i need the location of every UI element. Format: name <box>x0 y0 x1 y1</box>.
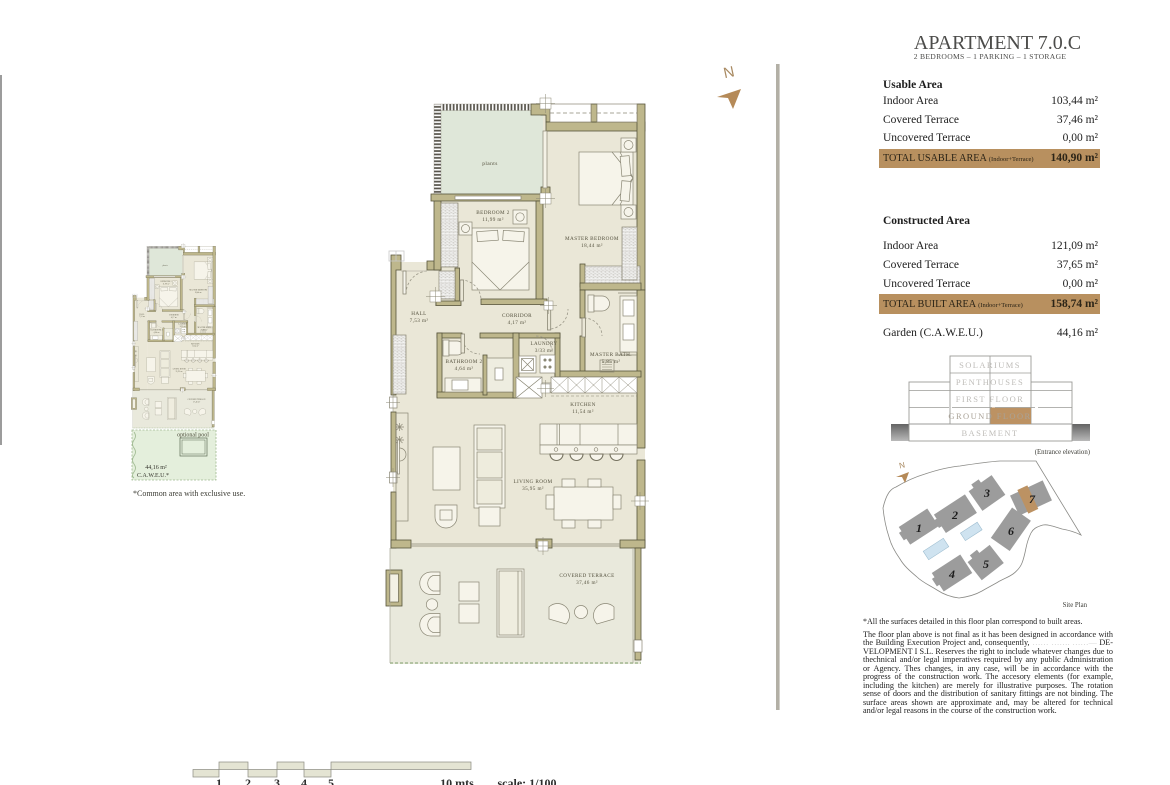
svg-text:(Entrance elevation): (Entrance elevation) <box>1035 449 1090 456</box>
svg-text:HALL: HALL <box>411 311 426 317</box>
svg-text:11,99 m²: 11,99 m² <box>482 217 504 223</box>
svg-text:7: 7 <box>1029 492 1036 506</box>
svg-text:3: 3 <box>274 776 280 785</box>
svg-text:35,95 m²: 35,95 m² <box>522 486 544 492</box>
svg-text:BATHROOM 2: BATHROOM 2 <box>445 359 482 365</box>
svg-text:37,46 m²: 37,46 m² <box>576 580 598 586</box>
svg-text:SOLARIUMS: SOLARIUMS <box>959 360 1021 370</box>
svg-text:scale: 1/100: scale: 1/100 <box>498 776 557 785</box>
svg-text:1: 1 <box>216 776 222 785</box>
svg-text:2: 2 <box>951 508 958 522</box>
svg-text:FIRST FLOOR: FIRST FLOOR <box>956 394 1024 404</box>
svg-text:5,85 m²: 5,85 m² <box>602 359 621 365</box>
svg-text:5: 5 <box>328 776 334 785</box>
svg-text:LAUNDRY: LAUNDRY <box>531 342 558 347</box>
svg-text:C.A.W.E.U.*: C.A.W.E.U.* <box>137 473 169 479</box>
svg-text:10 mts: 10 mts <box>440 776 474 785</box>
svg-text:4,64 m²: 4,64 m² <box>455 366 474 372</box>
svg-text:Site Plan: Site Plan <box>1063 602 1088 609</box>
svg-text:N: N <box>722 63 736 82</box>
svg-text:18,44 m²: 18,44 m² <box>581 243 603 249</box>
svg-text:N: N <box>898 460 906 470</box>
svg-text:11,54 m²: 11,54 m² <box>572 409 594 415</box>
svg-text:3/33 m²: 3/33 m² <box>535 348 553 354</box>
svg-text:1: 1 <box>916 521 922 535</box>
svg-text:LIVING ROOM: LIVING ROOM <box>513 479 552 485</box>
svg-text:optional pool: optional pool <box>177 433 209 439</box>
svg-text:4: 4 <box>948 567 955 581</box>
svg-text:plants: plants <box>482 161 498 167</box>
svg-text:PENTHOUSES: PENTHOUSES <box>956 377 1024 387</box>
svg-text:COVERED TERRACE: COVERED TERRACE <box>559 573 614 579</box>
svg-text:CORRIDOR: CORRIDOR <box>502 313 532 319</box>
svg-text:7,53 m²: 7,53 m² <box>410 318 429 324</box>
svg-text:KITCHEN: KITCHEN <box>570 402 596 408</box>
svg-text:BASEMENT: BASEMENT <box>961 428 1018 438</box>
svg-text:4,17 m²: 4,17 m² <box>508 320 527 326</box>
svg-text:44,16 m²: 44,16 m² <box>145 465 167 471</box>
svg-text:4: 4 <box>301 776 307 785</box>
svg-text:MASTER BATH.: MASTER BATH. <box>590 352 632 358</box>
svg-text:BEDROOM 2: BEDROOM 2 <box>476 210 509 216</box>
svg-text:3: 3 <box>983 486 990 500</box>
svg-text:2: 2 <box>245 776 251 785</box>
svg-text:*Common area with exclusive us: *Common area with exclusive use. <box>133 489 245 498</box>
svg-text:MASTER BEDROOM: MASTER BEDROOM <box>565 236 619 242</box>
svg-text:5: 5 <box>983 557 989 571</box>
svg-text:GROUND FLOOR: GROUND FLOOR <box>948 411 1031 421</box>
svg-text:6: 6 <box>1008 524 1014 538</box>
